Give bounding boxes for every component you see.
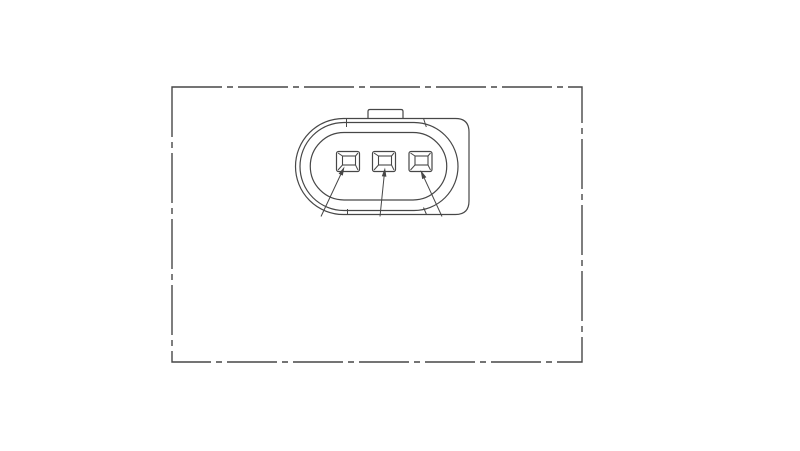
pin-1	[337, 152, 360, 172]
pin-2-bevel-3	[392, 165, 395, 170]
connector-drawing	[0, 0, 800, 451]
drawing-page	[0, 0, 800, 451]
pin-3	[409, 152, 432, 172]
pin-2-bevel-1	[392, 153, 395, 156]
key-tab	[368, 110, 403, 120]
pin-3-bevel-1	[428, 153, 431, 156]
housing-outline-mid	[300, 123, 458, 211]
pin-1-bevel-3	[356, 165, 359, 170]
leader-pin-2-arrowhead-icon	[382, 168, 387, 177]
pin-2-inner	[379, 156, 392, 165]
pin-3-bevel-3	[428, 165, 431, 170]
pin-2	[373, 152, 396, 172]
leader-pin-2	[380, 168, 386, 217]
pin-3-inner	[415, 156, 428, 165]
phantom-frame	[172, 87, 582, 362]
pin-1-bevel-2	[338, 165, 343, 170]
pin-3-bevel-0	[411, 153, 416, 156]
pin-2-bevel-2	[374, 165, 379, 170]
pin-1-bevel-0	[338, 153, 343, 156]
pin-2-bevel-0	[374, 153, 379, 156]
housing-outline-inner	[310, 133, 446, 201]
pin-1-bevel-1	[356, 153, 359, 156]
pin-3-bevel-2	[411, 165, 416, 170]
pin-1-inner	[343, 156, 356, 165]
